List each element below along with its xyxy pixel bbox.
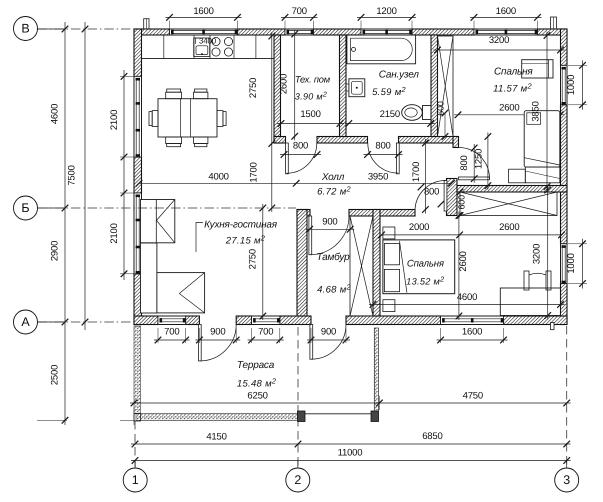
- svg-text:1200: 1200: [376, 6, 396, 17]
- svg-text:3850: 3850: [531, 101, 542, 121]
- svg-text:4.68 м2: 4.68 м2: [317, 282, 351, 295]
- svg-text:11.57 м2: 11.57 м2: [493, 82, 532, 95]
- svg-text:Кухня-гостиная: Кухня-гостиная: [204, 220, 278, 231]
- svg-text:Тех. пом: Тех. пом: [295, 75, 331, 85]
- svg-text:800: 800: [459, 155, 470, 170]
- svg-text:800: 800: [293, 141, 308, 152]
- svg-text:Холл: Холл: [321, 172, 345, 183]
- svg-text:700: 700: [164, 327, 179, 338]
- svg-text:Тамбур: Тамбур: [316, 252, 350, 263]
- svg-text:15.48 м2: 15.48 м2: [237, 376, 276, 389]
- svg-text:1000: 1000: [566, 75, 577, 95]
- svg-text:4750: 4750: [463, 390, 483, 401]
- svg-text:1600: 1600: [193, 6, 213, 17]
- svg-text:1700: 1700: [249, 162, 260, 182]
- svg-text:2100: 2100: [109, 110, 120, 130]
- svg-text:Сан.узел: Сан.узел: [379, 70, 420, 81]
- svg-text:6850: 6850: [422, 431, 442, 442]
- svg-text:900: 900: [322, 216, 337, 227]
- svg-text:6250: 6250: [247, 391, 267, 402]
- svg-text:800: 800: [375, 141, 390, 152]
- svg-text:1500: 1500: [300, 109, 320, 120]
- svg-text:А: А: [21, 315, 30, 329]
- svg-text:2150: 2150: [380, 109, 400, 120]
- svg-text:600: 600: [457, 195, 467, 210]
- svg-text:2750: 2750: [247, 249, 258, 269]
- svg-text:5.59 м2: 5.59 м2: [372, 85, 406, 98]
- svg-text:2600: 2600: [458, 251, 469, 271]
- svg-text:3950: 3950: [368, 172, 388, 183]
- svg-text:2900: 2900: [50, 241, 61, 261]
- svg-text:700: 700: [292, 6, 307, 17]
- svg-text:3: 3: [563, 473, 570, 487]
- svg-text:700: 700: [258, 327, 273, 338]
- svg-text:1700: 1700: [411, 162, 422, 182]
- svg-text:1600: 1600: [496, 6, 516, 17]
- svg-text:2500: 2500: [50, 365, 61, 385]
- svg-text:2000: 2000: [409, 222, 429, 233]
- svg-text:Б: Б: [21, 201, 29, 215]
- svg-text:800: 800: [424, 187, 439, 198]
- svg-text:900: 900: [210, 327, 225, 338]
- svg-text:3400: 3400: [199, 37, 217, 46]
- svg-text:В: В: [21, 22, 29, 36]
- svg-text:6.72 м2: 6.72 м2: [317, 185, 351, 198]
- svg-text:2600: 2600: [499, 222, 519, 233]
- svg-text:3.90 м2: 3.90 м2: [295, 92, 327, 102]
- svg-text:4600: 4600: [50, 104, 61, 124]
- svg-text:3200: 3200: [531, 244, 542, 264]
- svg-text:4150: 4150: [206, 432, 226, 443]
- svg-text:11000: 11000: [338, 448, 363, 459]
- svg-text:Спальня: Спальня: [407, 258, 444, 269]
- svg-text:2600: 2600: [499, 102, 519, 113]
- svg-text:2100: 2100: [109, 223, 120, 243]
- svg-text:2600: 2600: [279, 74, 290, 94]
- svg-text:600: 600: [436, 101, 446, 116]
- svg-text:2750: 2750: [248, 78, 259, 98]
- svg-text:1000: 1000: [566, 253, 577, 273]
- svg-text:Терраса: Терраса: [237, 360, 275, 371]
- svg-text:1600: 1600: [462, 327, 482, 338]
- svg-text:7500: 7500: [67, 165, 78, 185]
- svg-text:3200: 3200: [489, 35, 509, 46]
- svg-text:13.52 м2: 13.52 м2: [406, 274, 444, 286]
- svg-text:900: 900: [321, 327, 336, 338]
- svg-text:4600: 4600: [457, 292, 477, 303]
- svg-text:Спальня: Спальня: [494, 67, 533, 78]
- svg-text:1250: 1250: [473, 149, 484, 169]
- svg-text:1: 1: [132, 473, 139, 487]
- svg-text:4000: 4000: [208, 172, 228, 183]
- svg-text:2: 2: [294, 473, 301, 487]
- svg-text:27.15 м2: 27.15 м2: [225, 234, 265, 247]
